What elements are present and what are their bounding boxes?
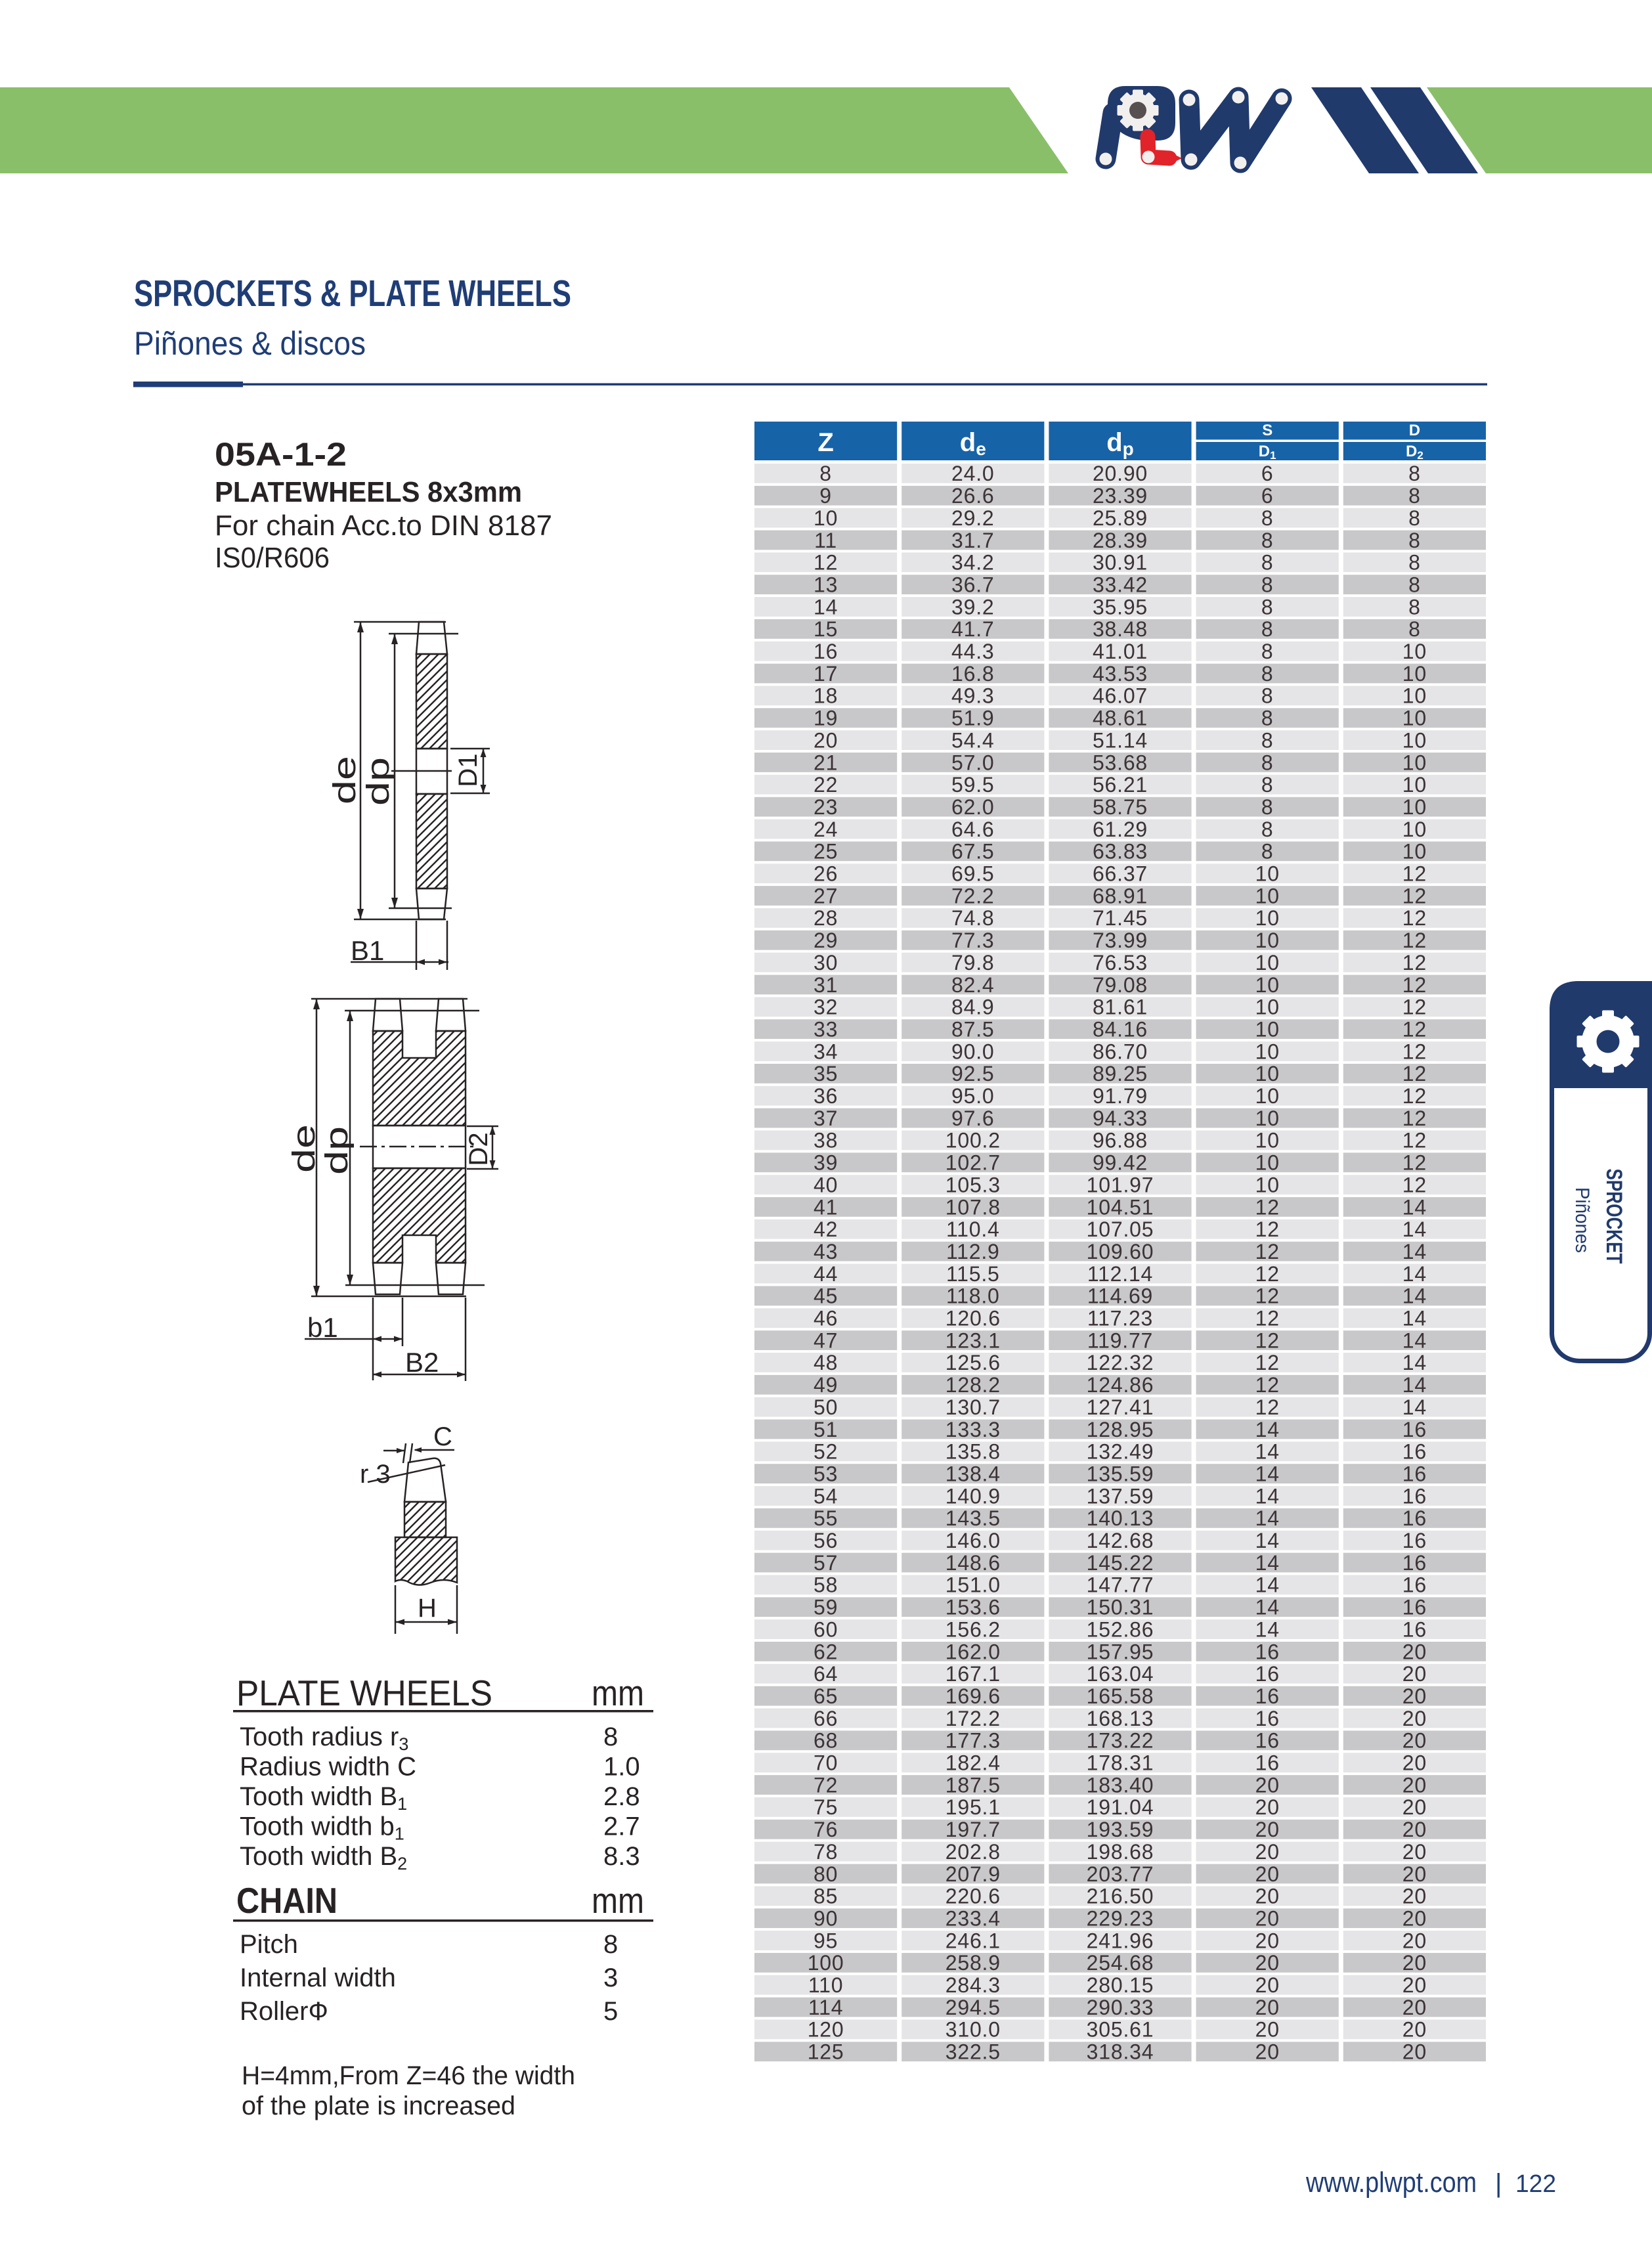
svg-text:8.3: 8.3 — [603, 1842, 640, 1871]
svg-text:PLATE WHEELS: PLATE WHEELS — [236, 1673, 492, 1713]
svg-text:8: 8 — [1408, 529, 1421, 552]
svg-text:8: 8 — [1261, 684, 1274, 708]
svg-text:241.96: 241.96 — [1087, 1929, 1154, 1952]
svg-text:14: 14 — [1255, 1551, 1280, 1575]
svg-text:137.59: 137.59 — [1087, 1484, 1154, 1508]
svg-text:12: 12 — [1255, 1217, 1280, 1241]
svg-text:140.13: 140.13 — [1087, 1506, 1154, 1530]
svg-text:148.6: 148.6 — [946, 1551, 1001, 1575]
svg-text:86.70: 86.70 — [1093, 1040, 1148, 1063]
svg-text:156.2: 156.2 — [946, 1617, 1001, 1641]
svg-text:20: 20 — [1402, 1795, 1427, 1819]
svg-text:183.40: 183.40 — [1087, 1773, 1154, 1797]
svg-text:37: 37 — [814, 1107, 838, 1130]
svg-text:54.4: 54.4 — [951, 728, 994, 752]
svg-text:48.61: 48.61 — [1093, 707, 1148, 730]
svg-text:69.5: 69.5 — [951, 862, 994, 886]
svg-text:207.9: 207.9 — [946, 1862, 1001, 1886]
svg-text:44: 44 — [814, 1262, 838, 1286]
svg-text:14: 14 — [1402, 1373, 1427, 1397]
svg-text:10: 10 — [1255, 1129, 1280, 1152]
svg-text:62.0: 62.0 — [951, 795, 994, 819]
svg-text:40: 40 — [814, 1173, 838, 1196]
svg-text:8: 8 — [1261, 707, 1274, 730]
svg-text:16: 16 — [1255, 1662, 1280, 1686]
svg-text:de: de — [287, 1124, 322, 1173]
svg-text:24: 24 — [814, 818, 838, 841]
svg-text:57.0: 57.0 — [951, 751, 994, 774]
svg-text:D1: D1 — [454, 753, 483, 787]
svg-text:76.53: 76.53 — [1093, 951, 1148, 975]
svg-text:36: 36 — [814, 1084, 838, 1108]
svg-text:94.33: 94.33 — [1093, 1107, 1148, 1130]
svg-text:51.9: 51.9 — [951, 707, 994, 730]
svg-text:91.79: 91.79 — [1093, 1084, 1148, 1108]
svg-text:29.2: 29.2 — [951, 506, 994, 530]
svg-text:140.9: 140.9 — [946, 1484, 1001, 1508]
svg-text:114: 114 — [808, 1996, 843, 2019]
svg-text:168.13: 168.13 — [1087, 1707, 1154, 1730]
svg-text:8: 8 — [1408, 462, 1421, 485]
svg-text:229.23: 229.23 — [1087, 1906, 1154, 1930]
svg-text:21: 21 — [814, 751, 838, 774]
svg-text:51: 51 — [814, 1418, 838, 1441]
svg-text:1.0: 1.0 — [603, 1753, 640, 1782]
svg-text:150.31: 150.31 — [1087, 1596, 1154, 1619]
svg-text:16: 16 — [1402, 1462, 1427, 1485]
svg-text:35: 35 — [814, 1062, 838, 1085]
svg-text:16: 16 — [1402, 1617, 1427, 1641]
svg-text:79.8: 79.8 — [951, 951, 994, 975]
svg-text:29: 29 — [814, 929, 838, 952]
svg-text:56: 56 — [814, 1529, 838, 1552]
svg-text:14: 14 — [1402, 1284, 1427, 1308]
svg-text:79.08: 79.08 — [1093, 973, 1148, 997]
svg-text:22: 22 — [814, 773, 838, 797]
svg-text:20: 20 — [1255, 2018, 1280, 2042]
svg-text:8: 8 — [1261, 506, 1274, 530]
svg-text:128.95: 128.95 — [1087, 1418, 1154, 1441]
svg-text:80: 80 — [814, 1862, 838, 1886]
svg-text:Tooth radius r3: Tooth radius r3 — [240, 1722, 408, 1754]
svg-text:12: 12 — [1255, 1373, 1280, 1397]
svg-text:10: 10 — [1255, 862, 1280, 886]
svg-text:9: 9 — [819, 484, 832, 508]
svg-text:31.7: 31.7 — [951, 529, 994, 552]
svg-text:14: 14 — [1255, 1529, 1280, 1552]
svg-text:27: 27 — [814, 884, 838, 908]
svg-text:42: 42 — [814, 1217, 838, 1241]
svg-text:66: 66 — [814, 1707, 838, 1730]
svg-text:12: 12 — [1402, 996, 1427, 1019]
svg-text:dp: dp — [320, 1126, 355, 1175]
svg-text:162.0: 162.0 — [946, 1640, 1001, 1663]
svg-text:05A-1-2: 05A-1-2 — [215, 436, 347, 473]
svg-text:135.59: 135.59 — [1087, 1462, 1154, 1485]
svg-text:16: 16 — [1255, 1640, 1280, 1663]
svg-text:246.1: 246.1 — [946, 1929, 1001, 1952]
svg-text:10: 10 — [1255, 996, 1280, 1019]
svg-text:73.99: 73.99 — [1093, 929, 1148, 952]
svg-text:123.1: 123.1 — [946, 1328, 1001, 1352]
svg-text:169.6: 169.6 — [946, 1684, 1001, 1708]
svg-text:84.16: 84.16 — [1093, 1017, 1148, 1041]
svg-text:187.5: 187.5 — [946, 1773, 1001, 1797]
svg-text:16: 16 — [1402, 1573, 1427, 1597]
svg-text:10: 10 — [1255, 884, 1280, 908]
svg-text:10: 10 — [1255, 929, 1280, 952]
svg-text:of the plate is increased: of the plate is increased — [242, 2092, 515, 2120]
svg-text:20: 20 — [1402, 1729, 1427, 1753]
svg-text:107.8: 107.8 — [946, 1195, 1001, 1219]
svg-text:20: 20 — [1402, 1818, 1427, 1841]
svg-text:Internal width: Internal width — [240, 1963, 396, 1992]
svg-text:81.61: 81.61 — [1093, 996, 1148, 1019]
svg-text:14: 14 — [1255, 1484, 1280, 1508]
svg-text:12: 12 — [1255, 1328, 1280, 1352]
svg-text:233.4: 233.4 — [946, 1906, 1001, 1930]
svg-text:115.5: 115.5 — [946, 1262, 1000, 1286]
svg-text:28: 28 — [814, 906, 838, 930]
svg-text:53.68: 53.68 — [1093, 751, 1148, 774]
svg-text:8: 8 — [1261, 595, 1274, 619]
svg-text:de: de — [328, 756, 362, 804]
svg-text:www.plwpt.com: www.plwpt.com — [1305, 2166, 1477, 2199]
svg-text:33.42: 33.42 — [1093, 573, 1148, 596]
svg-text:107.05: 107.05 — [1087, 1217, 1154, 1241]
svg-text:53: 53 — [814, 1462, 838, 1485]
svg-text:C: C — [433, 1422, 452, 1451]
svg-text:14: 14 — [1402, 1328, 1427, 1352]
svg-text:318.34: 318.34 — [1087, 2040, 1154, 2064]
svg-text:B2: B2 — [405, 1347, 439, 1378]
svg-text:152.86: 152.86 — [1087, 1617, 1154, 1641]
svg-text:10: 10 — [1402, 818, 1427, 841]
svg-text:294.5: 294.5 — [946, 1996, 1001, 2019]
svg-text:38.48: 38.48 — [1093, 617, 1148, 641]
svg-text:12: 12 — [1402, 1173, 1427, 1196]
svg-text:322.5: 322.5 — [946, 2040, 1001, 2064]
svg-text:r 3: r 3 — [360, 1460, 391, 1489]
svg-text:20: 20 — [1255, 1862, 1280, 1886]
svg-text:12: 12 — [1255, 1284, 1280, 1308]
svg-text:10: 10 — [1255, 1107, 1280, 1130]
svg-text:25.89: 25.89 — [1093, 506, 1148, 530]
svg-text:47: 47 — [814, 1328, 838, 1352]
svg-text:33: 33 — [814, 1017, 838, 1041]
svg-text:10: 10 — [814, 506, 838, 530]
svg-text:48: 48 — [814, 1351, 838, 1374]
svg-text:Piñones: Piñones — [1571, 1187, 1593, 1253]
svg-text:216.50: 216.50 — [1087, 1885, 1154, 1908]
svg-text:75: 75 — [814, 1795, 838, 1819]
svg-text:203.77: 203.77 — [1087, 1862, 1154, 1886]
svg-text:32: 32 — [814, 996, 838, 1019]
svg-text:10: 10 — [1255, 1062, 1280, 1085]
svg-text:CHAIN: CHAIN — [236, 1880, 337, 1921]
svg-text:10: 10 — [1255, 1084, 1280, 1108]
svg-text:85: 85 — [814, 1885, 838, 1908]
svg-text:64.6: 64.6 — [951, 818, 994, 841]
svg-text:3: 3 — [603, 1963, 618, 1992]
svg-text:62: 62 — [814, 1640, 838, 1663]
svg-text:202.8: 202.8 — [946, 1840, 1001, 1864]
svg-text:10: 10 — [1402, 840, 1427, 864]
svg-text:46.07: 46.07 — [1093, 684, 1148, 708]
svg-text:12: 12 — [1402, 973, 1427, 997]
svg-text:8: 8 — [603, 1722, 618, 1751]
svg-text:13: 13 — [814, 573, 838, 596]
svg-text:195.1: 195.1 — [946, 1795, 1001, 1819]
svg-text:118.0: 118.0 — [946, 1284, 1000, 1308]
svg-text:14: 14 — [1402, 1195, 1427, 1219]
svg-text:43: 43 — [814, 1240, 838, 1263]
svg-text:112.14: 112.14 — [1087, 1262, 1153, 1286]
svg-text:133.3: 133.3 — [946, 1418, 1001, 1441]
svg-text:31: 31 — [814, 973, 838, 997]
svg-text:8: 8 — [1261, 795, 1274, 819]
svg-text:173.22: 173.22 — [1087, 1729, 1154, 1753]
svg-text:198.68: 198.68 — [1087, 1840, 1154, 1864]
svg-text:26: 26 — [814, 862, 838, 886]
svg-text:157.95: 157.95 — [1087, 1640, 1154, 1663]
svg-text:8: 8 — [1261, 573, 1274, 596]
svg-text:SPROCKETS & PLATE WHEELS: SPROCKETS & PLATE WHEELS — [134, 273, 571, 315]
svg-text:19: 19 — [814, 707, 838, 730]
svg-text:20: 20 — [1255, 1929, 1280, 1952]
svg-text:6: 6 — [1261, 484, 1274, 508]
svg-text:5: 5 — [603, 1997, 618, 2026]
svg-text:10: 10 — [1402, 684, 1427, 708]
svg-text:125: 125 — [808, 2040, 844, 2064]
svg-text:57: 57 — [814, 1551, 838, 1575]
svg-text:S: S — [1262, 422, 1272, 439]
svg-text:197.7: 197.7 — [946, 1818, 1001, 1841]
svg-text:B1: B1 — [351, 935, 384, 966]
svg-text:101.97: 101.97 — [1087, 1173, 1154, 1196]
svg-text:20: 20 — [1402, 1862, 1427, 1886]
svg-text:89.25: 89.25 — [1093, 1062, 1148, 1085]
svg-text:30: 30 — [814, 951, 838, 975]
svg-text:114.69: 114.69 — [1087, 1284, 1153, 1308]
svg-text:Tooth width B1: Tooth width B1 — [240, 1782, 407, 1814]
svg-text:12: 12 — [1402, 884, 1427, 908]
svg-text:132.49: 132.49 — [1087, 1440, 1154, 1464]
svg-text:143.5: 143.5 — [946, 1506, 1001, 1530]
svg-text:14: 14 — [1255, 1617, 1280, 1641]
svg-text:90: 90 — [814, 1906, 838, 1930]
svg-text:125.6: 125.6 — [946, 1351, 1001, 1374]
svg-text:67.5: 67.5 — [951, 840, 994, 864]
svg-text:|: | — [1495, 2169, 1502, 2198]
svg-text:50: 50 — [814, 1395, 838, 1419]
svg-text:100: 100 — [808, 1951, 844, 1975]
svg-text:68.91: 68.91 — [1093, 884, 1148, 908]
svg-text:16: 16 — [1402, 1551, 1427, 1575]
svg-text:41.01: 41.01 — [1093, 640, 1148, 663]
svg-text:191.04: 191.04 — [1087, 1795, 1154, 1819]
svg-text:51.14: 51.14 — [1093, 728, 1148, 752]
svg-text:20: 20 — [1255, 1973, 1280, 1997]
svg-text:74.8: 74.8 — [951, 906, 994, 930]
svg-text:87.5: 87.5 — [951, 1017, 994, 1041]
svg-text:153.6: 153.6 — [946, 1596, 1001, 1619]
svg-text:20: 20 — [1402, 2018, 1427, 2042]
svg-text:20: 20 — [1255, 1996, 1280, 2019]
svg-text:20: 20 — [1255, 1840, 1280, 1864]
svg-text:54: 54 — [814, 1484, 838, 1508]
svg-text:167.1: 167.1 — [946, 1662, 1001, 1686]
svg-text:305.61: 305.61 — [1087, 2018, 1154, 2042]
svg-text:310.0: 310.0 — [946, 2018, 1001, 2042]
svg-text:20: 20 — [1402, 1951, 1427, 1975]
svg-text:34: 34 — [814, 1040, 838, 1063]
svg-text:104.51: 104.51 — [1087, 1195, 1154, 1219]
svg-text:12: 12 — [1402, 951, 1427, 975]
svg-text:97.6: 97.6 — [951, 1107, 994, 1130]
svg-text:8: 8 — [1261, 529, 1274, 552]
svg-text:12: 12 — [1402, 1084, 1427, 1108]
svg-text:12: 12 — [1255, 1395, 1280, 1419]
svg-text:119.77: 119.77 — [1087, 1328, 1153, 1352]
svg-text:20: 20 — [814, 728, 838, 752]
svg-text:45: 45 — [814, 1284, 838, 1308]
svg-text:12: 12 — [1402, 1129, 1427, 1152]
svg-text:102.7: 102.7 — [946, 1151, 1001, 1175]
svg-text:55: 55 — [814, 1506, 838, 1530]
svg-text:178.31: 178.31 — [1087, 1751, 1154, 1775]
svg-text:16: 16 — [1255, 1684, 1280, 1708]
svg-text:8: 8 — [603, 1930, 618, 1959]
svg-text:Pitch: Pitch — [240, 1930, 298, 1959]
svg-text:10: 10 — [1255, 906, 1280, 930]
svg-text:H=4mm,From Z=46 the width: H=4mm,From Z=46 the width — [242, 2061, 575, 2090]
svg-text:dp: dp — [361, 757, 396, 806]
svg-text:34.2: 34.2 — [951, 551, 994, 575]
svg-text:20: 20 — [1255, 1906, 1280, 1930]
svg-text:12: 12 — [1402, 1040, 1427, 1063]
svg-text:16: 16 — [1402, 1596, 1427, 1619]
svg-text:112.9: 112.9 — [946, 1240, 1000, 1263]
svg-text:2.8: 2.8 — [603, 1782, 640, 1811]
svg-text:76: 76 — [814, 1818, 838, 1841]
svg-text:96.88: 96.88 — [1093, 1129, 1148, 1152]
svg-text:95: 95 — [814, 1929, 838, 1952]
svg-text:110: 110 — [808, 1973, 843, 1997]
svg-text:145.22: 145.22 — [1087, 1551, 1154, 1575]
svg-text:20: 20 — [1402, 1973, 1427, 1997]
svg-text:38: 38 — [814, 1129, 838, 1152]
svg-text:2.7: 2.7 — [603, 1812, 640, 1841]
svg-text:124.86: 124.86 — [1087, 1373, 1154, 1397]
svg-text:41.7: 41.7 — [951, 617, 994, 641]
svg-text:15: 15 — [814, 617, 838, 641]
svg-text:10: 10 — [1402, 728, 1427, 752]
svg-text:12: 12 — [814, 551, 838, 575]
svg-text:8: 8 — [1408, 573, 1421, 596]
svg-text:20: 20 — [1255, 1773, 1280, 1797]
svg-text:60: 60 — [814, 1617, 838, 1641]
svg-text:36.7: 36.7 — [951, 573, 994, 596]
svg-text:16: 16 — [1402, 1484, 1427, 1508]
svg-text:12: 12 — [1402, 1107, 1427, 1130]
svg-text:8: 8 — [1261, 840, 1274, 864]
svg-text:30.91: 30.91 — [1093, 551, 1148, 575]
svg-text:20: 20 — [1402, 1707, 1427, 1730]
svg-text:39: 39 — [814, 1151, 838, 1175]
svg-text:135.8: 135.8 — [946, 1440, 1001, 1464]
svg-text:258.9: 258.9 — [946, 1951, 1001, 1975]
svg-text:6: 6 — [1261, 462, 1274, 485]
svg-text:61.29: 61.29 — [1093, 818, 1148, 841]
svg-text:82.4: 82.4 — [951, 973, 994, 997]
svg-text:77.3: 77.3 — [951, 929, 994, 952]
svg-text:Tooth width b1: Tooth width b1 — [240, 1812, 404, 1844]
svg-text:284.3: 284.3 — [946, 1973, 1001, 1997]
svg-text:8: 8 — [1261, 551, 1274, 575]
svg-text:20: 20 — [1255, 1951, 1280, 1975]
svg-text:138.4: 138.4 — [946, 1462, 1001, 1485]
svg-text:10: 10 — [1402, 707, 1427, 730]
svg-text:8: 8 — [1261, 773, 1274, 797]
svg-text:20: 20 — [1402, 1662, 1427, 1686]
svg-text:58: 58 — [814, 1573, 838, 1597]
svg-text:49: 49 — [814, 1373, 838, 1397]
svg-text:8: 8 — [819, 462, 832, 485]
svg-text:14: 14 — [1402, 1217, 1427, 1241]
svg-text:14: 14 — [814, 595, 838, 619]
svg-text:12: 12 — [1402, 1062, 1427, 1085]
svg-text:D: D — [1409, 422, 1420, 439]
svg-text:mm: mm — [592, 1673, 644, 1713]
svg-text:28.39: 28.39 — [1093, 529, 1148, 552]
svg-text:14: 14 — [1255, 1418, 1280, 1441]
svg-text:26.6: 26.6 — [951, 484, 994, 508]
svg-text:72: 72 — [814, 1773, 838, 1797]
svg-text:12: 12 — [1402, 1151, 1427, 1175]
svg-text:24.0: 24.0 — [951, 462, 994, 485]
svg-text:16: 16 — [1402, 1418, 1427, 1441]
svg-text:70: 70 — [814, 1751, 838, 1775]
svg-text:10: 10 — [1255, 1040, 1280, 1063]
svg-text:20: 20 — [1255, 1795, 1280, 1819]
svg-text:16: 16 — [1255, 1751, 1280, 1775]
svg-text:66.37: 66.37 — [1093, 862, 1148, 886]
svg-text:16: 16 — [1255, 1729, 1280, 1753]
svg-text:56.21: 56.21 — [1093, 773, 1148, 797]
svg-text:58.75: 58.75 — [1093, 795, 1148, 819]
svg-text:163.04: 163.04 — [1087, 1662, 1154, 1686]
svg-text:10: 10 — [1402, 773, 1427, 797]
svg-text:14: 14 — [1255, 1573, 1280, 1597]
svg-text:120: 120 — [808, 2018, 844, 2042]
svg-text:18: 18 — [814, 684, 838, 708]
svg-text:10: 10 — [1402, 640, 1427, 663]
svg-text:Tooth width B2: Tooth width B2 — [240, 1842, 407, 1874]
svg-text:14: 14 — [1255, 1506, 1280, 1530]
svg-text:14: 14 — [1402, 1395, 1427, 1419]
svg-text:151.0: 151.0 — [946, 1573, 1001, 1597]
svg-text:8: 8 — [1261, 617, 1274, 641]
svg-text:12: 12 — [1255, 1262, 1280, 1286]
svg-text:20: 20 — [1402, 1773, 1427, 1797]
svg-text:Z: Z — [817, 428, 833, 457]
svg-text:46: 46 — [814, 1307, 838, 1330]
svg-text:10: 10 — [1255, 1151, 1280, 1175]
svg-text:20: 20 — [1402, 1751, 1427, 1775]
svg-text:20: 20 — [1402, 1885, 1427, 1908]
svg-text:10: 10 — [1402, 795, 1427, 819]
